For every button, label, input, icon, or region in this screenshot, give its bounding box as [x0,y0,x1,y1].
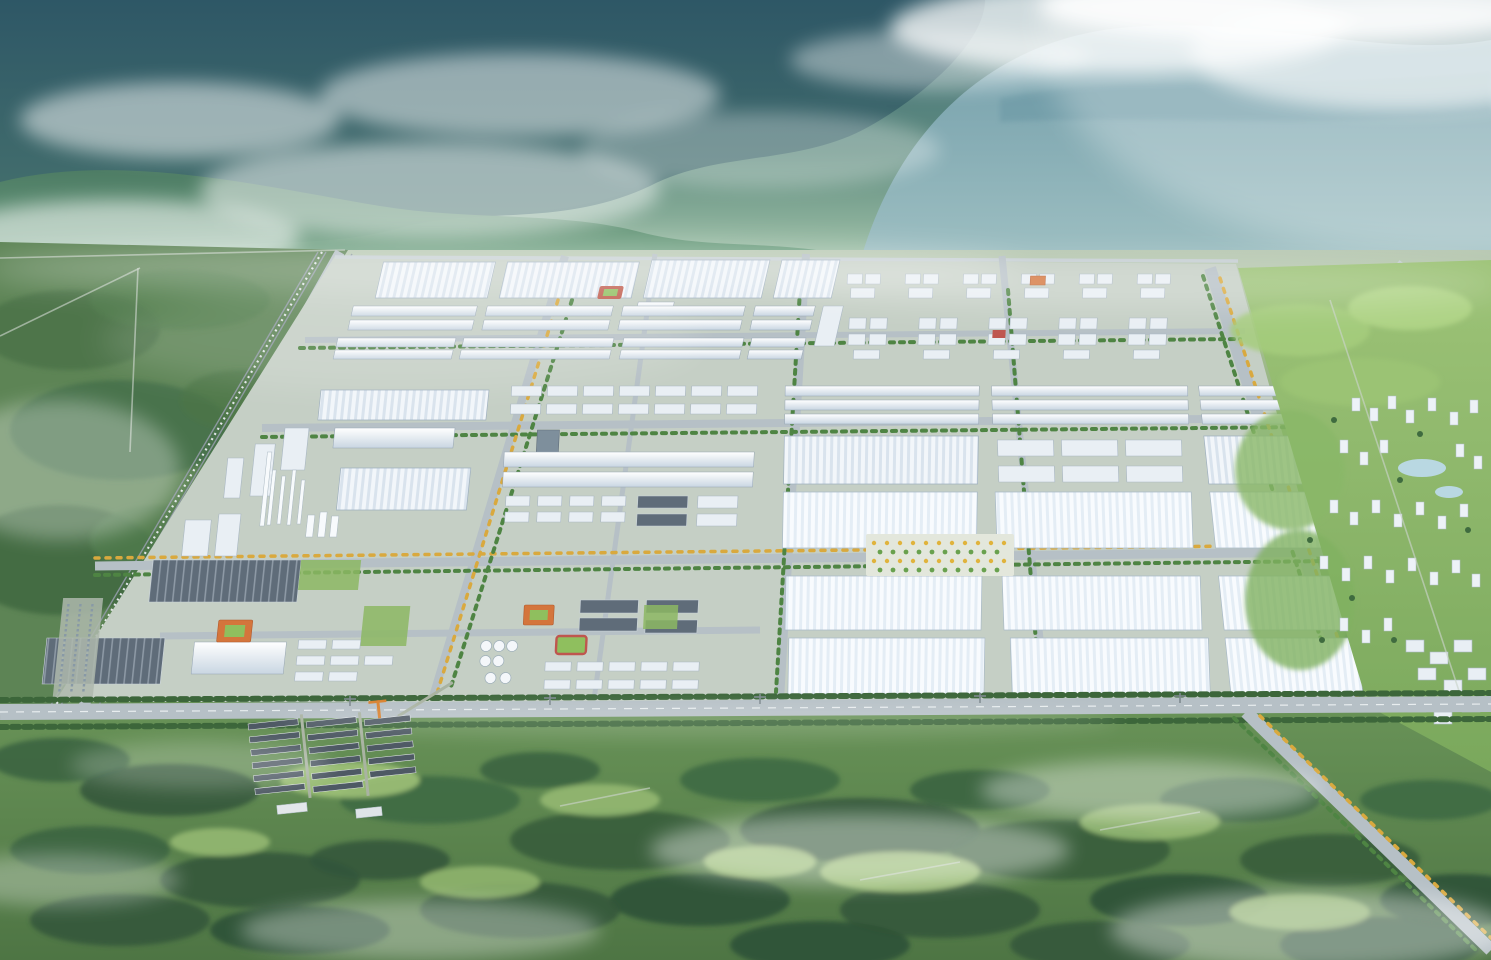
center-plaza-garden: Landscaped plaza with rows of yellow and… [866,534,1014,576]
orange-courtyard-building [217,620,253,642]
red-roof-block [992,330,1005,338]
aerial-industrial-park-rendering: Aerial rendering of a master-planned ind… [0,0,1491,960]
scene-canvas: Aerial rendering of a master-planned ind… [0,0,1491,960]
sports-field [556,636,587,654]
dark-factory-hall [149,560,301,602]
pond [1398,459,1446,477]
orange-courtyard-building [523,605,554,625]
